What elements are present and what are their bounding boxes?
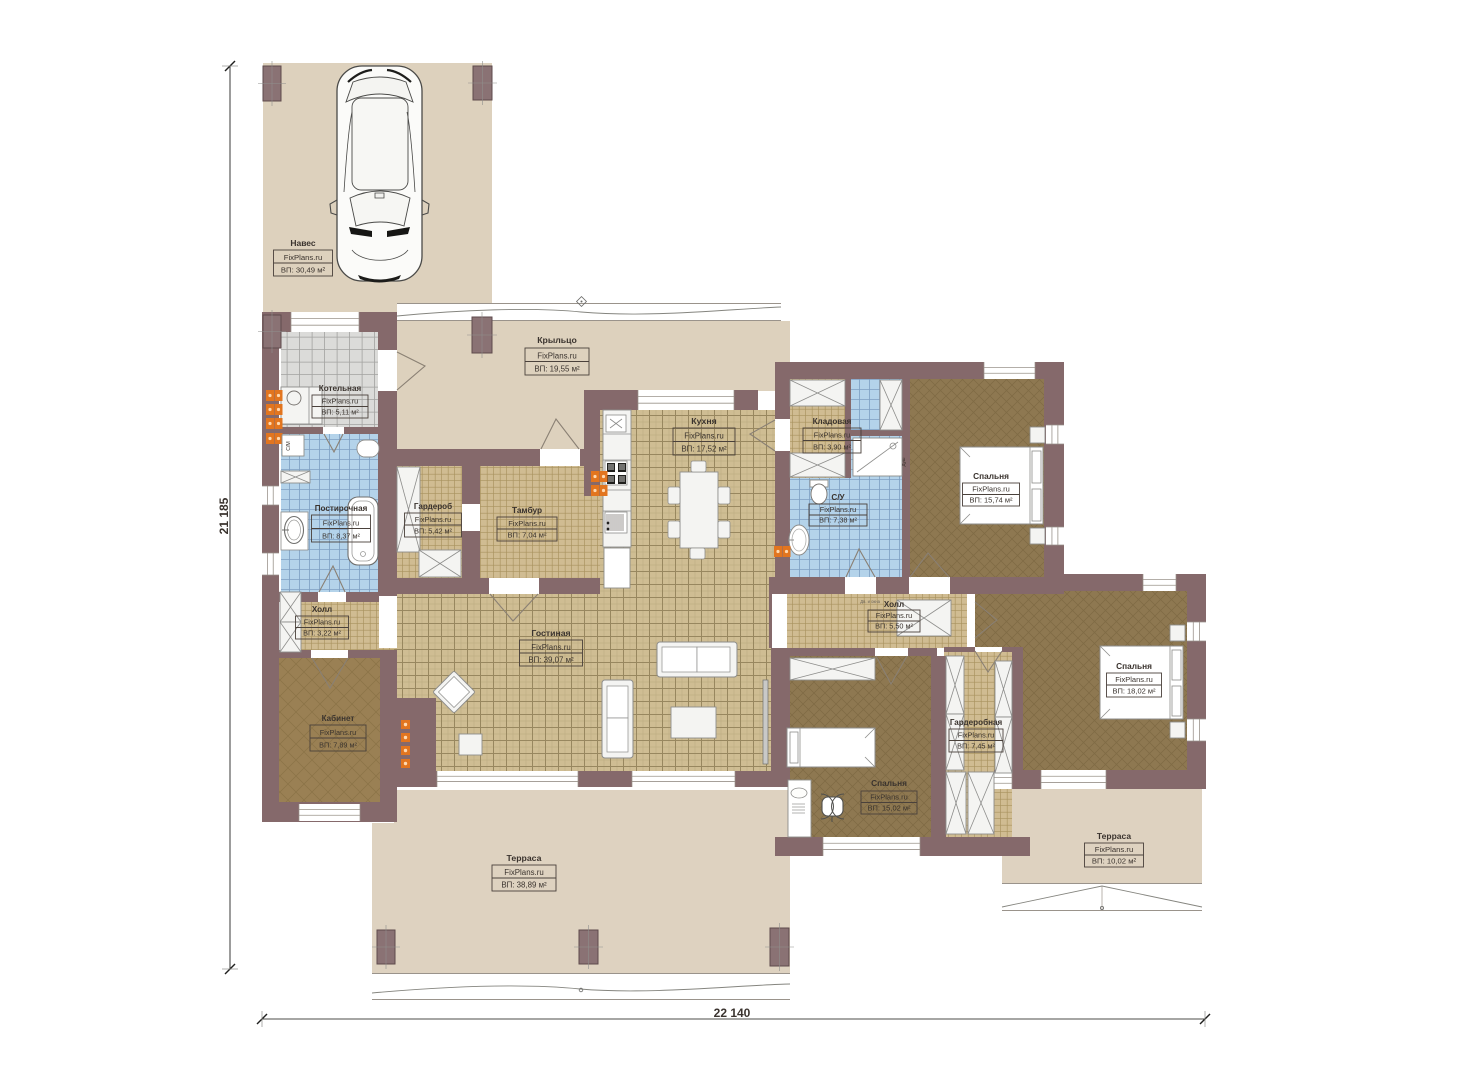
svg-text:ВП: 15,74 м²: ВП: 15,74 м²	[969, 496, 1013, 505]
svg-text:Тамбур: Тамбур	[512, 505, 542, 515]
svg-text:ВП: 17,52 м²: ВП: 17,52 м²	[681, 445, 727, 454]
svg-text:Котельная: Котельная	[319, 384, 362, 393]
svg-text:Спальня: Спальня	[973, 471, 1009, 481]
svg-text:FixPlans.ru: FixPlans.ru	[870, 792, 908, 801]
svg-text:ВП: 15,02 м²: ВП: 15,02 м²	[867, 804, 911, 813]
svg-text:FixPlans.ru: FixPlans.ru	[1115, 675, 1153, 684]
svg-text:ВП: 38,89 м²: ВП: 38,89 м²	[501, 881, 547, 890]
svg-text:21 185: 21 185	[217, 497, 231, 534]
svg-text:Спальня: Спальня	[871, 778, 907, 788]
svg-text:ВП: 7,38 м²: ВП: 7,38 м²	[819, 516, 857, 525]
svg-text:FixPlans.ru: FixPlans.ru	[958, 730, 995, 739]
svg-text:Холл: Холл	[312, 605, 332, 614]
svg-text:ВП: 5,50 м²: ВП: 5,50 м²	[875, 622, 913, 631]
svg-text:ВП: 18,02 м²: ВП: 18,02 м²	[1112, 687, 1156, 696]
svg-text:ВП: 7,45 м²: ВП: 7,45 м²	[957, 742, 995, 751]
svg-text:Постирочная: Постирочная	[315, 504, 368, 513]
svg-text:Душ: Душ	[901, 457, 906, 466]
svg-text:ВП: 19,55 м²: ВП: 19,55 м²	[534, 365, 580, 374]
svg-text:Дв. и окна: Дв. и окна	[860, 599, 880, 604]
svg-text:ВП: 7,89 м²: ВП: 7,89 м²	[319, 741, 357, 750]
svg-text:ВП: 7,04 м²: ВП: 7,04 м²	[508, 531, 547, 540]
svg-text:FixPlans.ru: FixPlans.ru	[876, 611, 913, 620]
svg-text:Гардероб: Гардероб	[414, 502, 452, 511]
svg-text:ВП: 30,49 м²: ВП: 30,49 м²	[281, 266, 326, 275]
svg-text:Терраса: Терраса	[507, 853, 542, 863]
svg-text:FixPlans.ru: FixPlans.ru	[537, 351, 576, 360]
svg-text:ВП: 5,11 м²: ВП: 5,11 м²	[321, 408, 359, 417]
svg-text:Кабинет: Кабинет	[322, 714, 355, 723]
svg-text:FixPlans.ru: FixPlans.ru	[1095, 845, 1133, 854]
svg-text:Холл: Холл	[884, 600, 904, 609]
svg-text:FixPlans.ru: FixPlans.ru	[684, 431, 723, 440]
svg-text:ВП: 5,42 м²: ВП: 5,42 м²	[414, 527, 452, 536]
svg-text:22 140: 22 140	[714, 1006, 751, 1020]
svg-text:ВП: 3,22 м²: ВП: 3,22 м²	[303, 629, 341, 638]
svg-text:FixPlans.ru: FixPlans.ru	[323, 518, 360, 527]
svg-text:FixPlans.ru: FixPlans.ru	[320, 728, 357, 737]
svg-text:Терраса: Терраса	[1097, 831, 1131, 841]
svg-text:FixPlans.ru: FixPlans.ru	[814, 430, 851, 439]
svg-text:ВП: 8,37 м²: ВП: 8,37 м²	[322, 532, 360, 541]
svg-text:С/У: С/У	[831, 493, 845, 502]
svg-text:ВП: 10,02 м²: ВП: 10,02 м²	[1092, 857, 1137, 866]
svg-text:Гардеробная: Гардеробная	[950, 718, 1003, 727]
svg-text:Крыльцо: Крыльцо	[537, 335, 577, 345]
svg-text:Гостиная: Гостиная	[531, 628, 570, 638]
svg-text:С/М: С/М	[286, 441, 292, 451]
svg-text:Спальня: Спальня	[1116, 661, 1152, 671]
svg-text:FixPlans.ru: FixPlans.ru	[531, 643, 570, 652]
svg-text:ВП: 39,07 м²: ВП: 39,07 м²	[528, 656, 574, 665]
svg-text:FixPlans.ru: FixPlans.ru	[284, 253, 322, 262]
svg-text:FixPlans.ru: FixPlans.ru	[504, 868, 543, 877]
svg-text:FixPlans.ru: FixPlans.ru	[508, 519, 546, 528]
svg-text:FixPlans.ru: FixPlans.ru	[820, 505, 857, 514]
svg-text:FixPlans.ru: FixPlans.ru	[322, 396, 359, 405]
svg-text:FixPlans.ru: FixPlans.ru	[972, 484, 1010, 493]
svg-text:Кладовая: Кладовая	[813, 417, 852, 426]
svg-text:FixPlans.ru: FixPlans.ru	[304, 617, 341, 626]
svg-text:ВП: 3,90 м²: ВП: 3,90 м²	[813, 443, 851, 452]
svg-text:Навес: Навес	[290, 238, 316, 248]
svg-text:FixPlans.ru: FixPlans.ru	[415, 515, 452, 524]
svg-text:Кухня: Кухня	[691, 416, 716, 426]
